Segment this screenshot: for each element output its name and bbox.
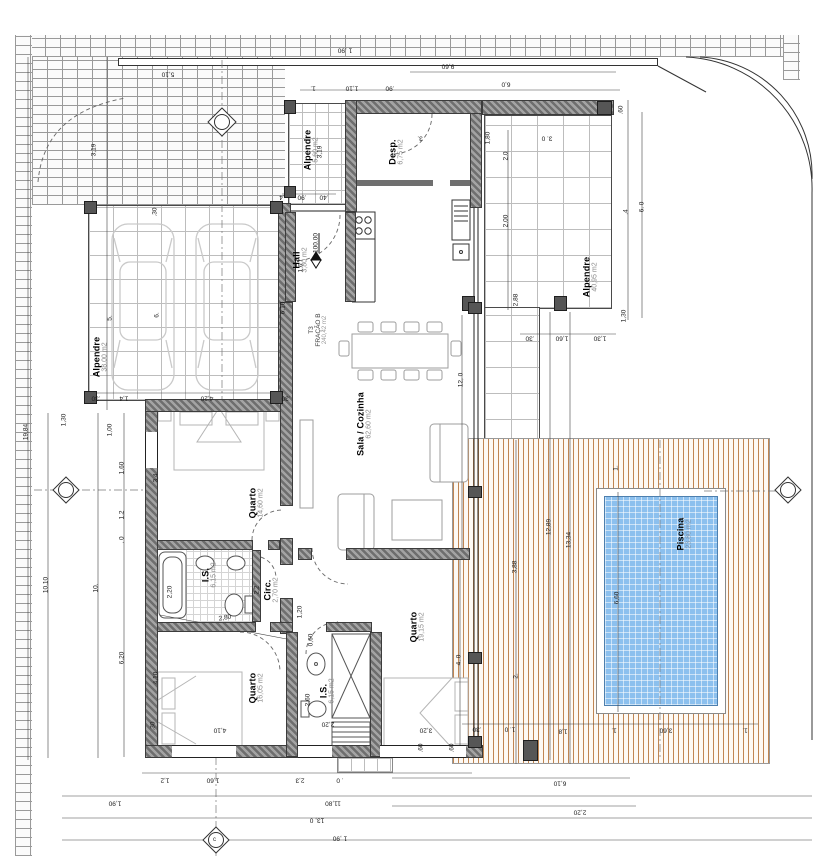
post-porch-right-se	[554, 296, 567, 311]
dim-label: 13, 0	[310, 817, 324, 824]
dim-label: 1.	[310, 85, 315, 92]
dining-set	[339, 322, 461, 380]
room-area: 62,60 m2	[366, 392, 373, 456]
room-label-alpendre-right: Alpendre 40,95 m2	[582, 257, 599, 298]
dim-label: . 0	[336, 777, 343, 784]
dim-label: 10,10	[43, 577, 50, 593]
post-garage-sw	[84, 391, 97, 404]
dim-label: 10.	[93, 583, 100, 592]
dim-label: 1,20	[297, 606, 304, 619]
dim-label: 2,60	[305, 694, 312, 707]
kitchen-fixtures	[352, 200, 470, 302]
wall-q1-is1-a	[157, 540, 253, 550]
dim-label: 1,30	[61, 414, 68, 427]
dim-label: 1,60	[556, 335, 569, 342]
room-label-piscina: Piscina 23,80 m2	[676, 518, 693, 551]
window-south-q3	[380, 745, 466, 758]
fraction-name: FRAÇÃO B	[315, 313, 322, 346]
post-porchtop-nw	[284, 100, 296, 114]
wall-hall-kitchen	[345, 212, 356, 302]
room-area: 6,75 m2	[398, 139, 405, 165]
wall-mid-a	[157, 622, 256, 632]
post-glazing-1	[468, 302, 482, 314]
room-name: Quarto	[248, 488, 258, 519]
dim-label: 1,10	[346, 85, 359, 92]
dim-label: 1,60	[119, 462, 126, 475]
dim-label: .60	[618, 105, 625, 114]
dim-label: 1,30	[594, 335, 607, 342]
dim-label: 0,60	[308, 634, 315, 647]
wall-bedroom-east-a	[280, 302, 293, 506]
post-garage-nw	[84, 201, 97, 214]
is1-floor	[186, 550, 252, 622]
wall-porch-right-top	[482, 100, 614, 115]
room-area: 2,70 m2	[273, 577, 280, 602]
sofa-set	[300, 420, 468, 550]
room-label-quarto-3: Quarto 19,15 m2	[409, 612, 426, 643]
post-deck-sw	[523, 740, 538, 761]
floor-plan-canvas: Alpendre 38,00 m2 Alpendre 5,60 m2 Desp.…	[0, 0, 816, 856]
wall-bedroom-east-b	[280, 538, 293, 565]
dim-label: 2,20	[322, 721, 335, 728]
post-glazing-4	[468, 736, 482, 748]
wall-mid-b	[270, 622, 293, 632]
room-area: 3,80 m2	[302, 247, 309, 272]
wall-is2-q3	[370, 632, 382, 757]
fraction-area: 240,42 m2	[322, 313, 328, 346]
dim-label: 1,30	[621, 310, 628, 323]
post-glazing-3	[468, 652, 482, 664]
room-area: 6,15 m2	[211, 562, 218, 587]
room-area: 16,05 m2	[258, 673, 265, 704]
room-area: 19,15 m2	[419, 612, 426, 643]
post-porchtop-sw	[284, 186, 296, 198]
wall-porchtop-right	[345, 100, 357, 212]
dim-label: 6. 0	[639, 202, 646, 213]
entry-step	[338, 758, 392, 772]
room-label-alpendre-top: Alpendre 5,60 m2	[303, 130, 320, 171]
level-marker-symbol	[311, 252, 321, 268]
dim-label: 1,90	[109, 800, 122, 807]
room-area: 6,15 m2	[329, 678, 336, 703]
room-area: 38,00 m2	[102, 337, 109, 378]
dim-label: 6,10	[554, 780, 567, 787]
room-name: Alpendre	[92, 337, 102, 378]
wall-desp-kitchen-a	[357, 180, 433, 186]
room-name: Circ.	[263, 577, 273, 602]
wall-is2-north	[326, 622, 372, 632]
dim-label: 11,80	[325, 800, 341, 807]
fraction-type: T3	[308, 313, 315, 346]
site-wall-left	[15, 35, 32, 856]
window-west-q1	[145, 432, 158, 468]
room-name: Quarto	[248, 673, 258, 704]
room-label-quarto-2: Quarto 16,05 m2	[248, 673, 265, 704]
wall-q3-north-a	[298, 548, 312, 560]
dim-label: 2,20	[167, 586, 174, 599]
dim-label: 1 ,90	[333, 835, 347, 842]
room-name: I.S.	[319, 678, 329, 703]
room-area: 14,60 m2	[258, 488, 265, 519]
room-name: Alpendre	[582, 257, 592, 298]
window-south-q2	[172, 745, 236, 758]
dim-label: 4,10	[214, 727, 227, 734]
boundary-fence	[118, 58, 658, 66]
dim-label: . 0	[119, 536, 126, 543]
wall-north	[352, 100, 482, 114]
post-glazing-2	[468, 486, 482, 498]
room-name: I.S.	[201, 562, 211, 587]
dim-label: 1,2	[119, 510, 126, 519]
wall-east-kitchen	[470, 113, 482, 208]
room-area: 40,95 m2	[592, 257, 599, 298]
room-area: 23,80 m2	[686, 518, 693, 551]
window-south-is2	[298, 745, 332, 758]
room-label-quarto-1: Quarto 14,60 m2	[248, 488, 265, 519]
wall-q1-is1-b	[268, 540, 280, 550]
pool-water	[604, 496, 718, 706]
dim-label: 12, 0	[458, 373, 465, 387]
room-label-desp: Desp. 6,75 m2	[388, 139, 405, 165]
wall-desp-kitchen-b	[450, 180, 470, 186]
axis-marker-letter: c	[213, 837, 216, 844]
post-garage-ne	[270, 201, 283, 214]
dim-label: 6,20	[119, 652, 126, 665]
room-label-is-2: I.S. 6,15 m2	[319, 678, 336, 703]
wall-q2-is2	[286, 632, 298, 757]
dim-label: .90	[385, 85, 394, 92]
fraction-label: T3 FRAÇÃO B 240,42 m2	[308, 313, 328, 346]
pavement-area	[32, 57, 285, 205]
site-wall-corner	[783, 35, 800, 80]
dim-label: 1,60	[207, 777, 220, 784]
room-label-circ: Circ. 2,70 m2	[263, 577, 280, 602]
wall-q3-north-b	[346, 548, 470, 560]
room-name: Piscina	[676, 518, 686, 551]
wall-is1-circ	[252, 550, 261, 622]
site-wall-top	[15, 35, 800, 57]
post-garage-se	[270, 391, 283, 404]
dim-label: 1,00	[107, 424, 114, 437]
room-name: Hall	[292, 247, 302, 272]
room-name: Desp.	[388, 139, 398, 165]
garage-floor	[88, 205, 280, 401]
dim-label: 2,3	[295, 777, 304, 784]
room-name: Alpendre	[303, 130, 313, 171]
dim-label: 2,20	[574, 809, 587, 816]
dim-label: 100.00	[313, 233, 320, 253]
room-label-alpendre-garage: Alpendre 38,00 m2	[92, 337, 109, 378]
post-porch-right-ne	[597, 101, 612, 115]
glazing-east	[288, 115, 478, 744]
dim-label: 6,0	[501, 81, 510, 88]
dim-label: 3.	[417, 135, 422, 142]
dim-label: 1,2	[160, 777, 169, 784]
dim-label: .4	[623, 209, 630, 214]
room-label-sala-cozinha: Sala / Cozinha 62,60 m2	[356, 392, 373, 456]
room-label-is-1: I.S. 6,15 m2	[201, 562, 218, 587]
room-area: 5,60 m2	[313, 130, 320, 171]
room-name: Quarto	[409, 612, 419, 643]
room-name: Sala / Cozinha	[356, 392, 366, 456]
room-label-hall: Hall 3,80 m2	[292, 247, 309, 272]
dim-label: 3,20	[420, 727, 433, 734]
